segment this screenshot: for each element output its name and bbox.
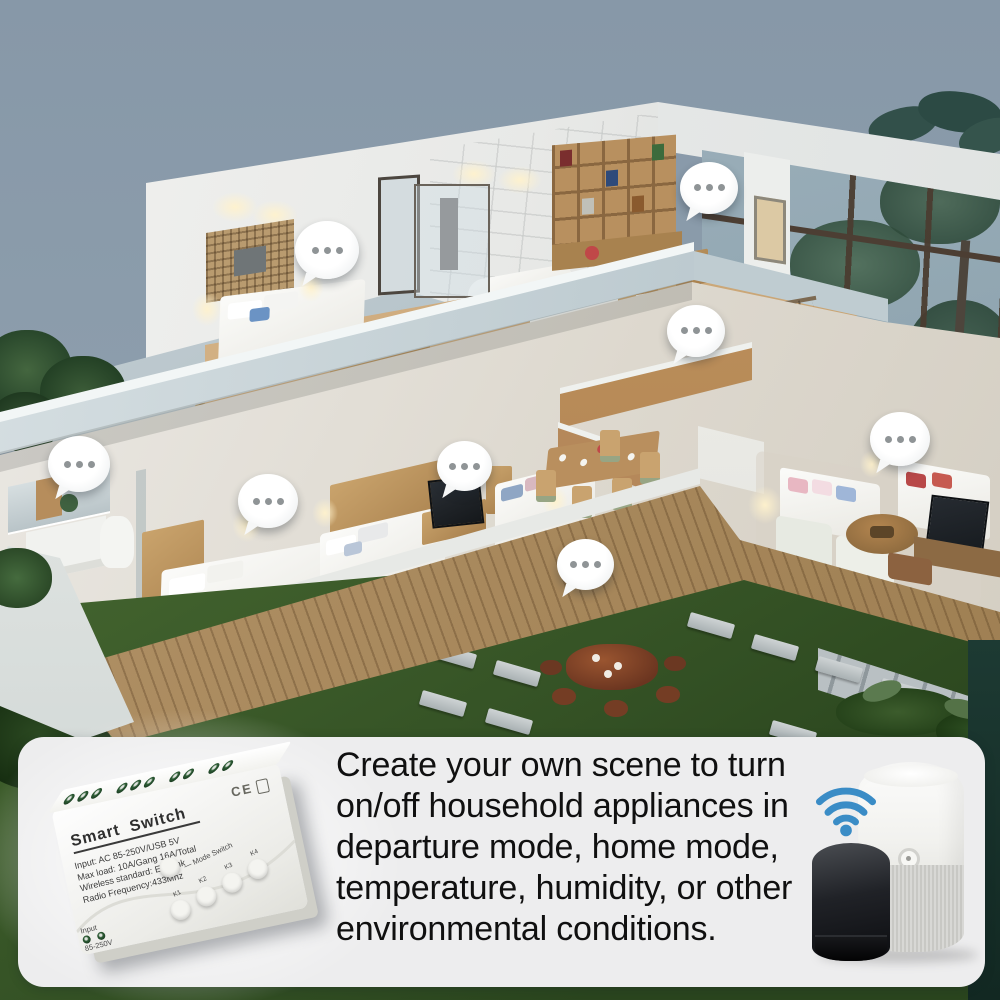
ce-mark: CE <box>230 777 270 800</box>
wifi-icon <box>812 775 880 837</box>
chat-bubble-ellipsis-icon <box>557 539 614 590</box>
ellipsis-dot <box>718 184 725 191</box>
ellipsis-dot <box>253 498 260 505</box>
ellipsis-dot <box>594 561 601 568</box>
ellipsis-dot <box>897 436 904 443</box>
ellipsis-dot <box>324 247 331 254</box>
feature-description: Create your own scene to turn on/off hou… <box>336 745 792 950</box>
feature-text-line: environmental conditions. <box>336 909 792 950</box>
ellipsis-dot <box>277 498 284 505</box>
info-panel: Smart Switch Input: AC 85-250V/USB 5V Ma… <box>18 737 985 987</box>
chat-bubble-ellipsis-icon <box>48 436 110 492</box>
ellipsis-dot <box>694 184 701 191</box>
terminal-screw <box>115 781 130 793</box>
terminal-strip <box>48 741 292 813</box>
chat-bubble-ellipsis-icon <box>667 305 725 357</box>
chat-bubble-ellipsis-icon <box>870 412 930 466</box>
chat-bubble-ellipsis-icon <box>238 474 298 528</box>
input-terminals: Input 85-250V <box>79 920 113 953</box>
smart-switch-product-photo: Smart Switch Input: AC 85-250V/USB 5V Ma… <box>34 745 346 973</box>
feature-text-line: temperature, humidity, or other <box>336 868 792 909</box>
terminal-screw <box>207 762 222 774</box>
terminal-screw <box>167 770 182 782</box>
ellipsis-dot <box>909 436 916 443</box>
smart-switch-body: Smart Switch Input: AC 85-250V/USB 5V Ma… <box>51 762 309 955</box>
feature-text-line: Create your own scene to turn <box>336 745 792 786</box>
smart-speaker-black <box>812 843 890 961</box>
ellipsis-dot <box>582 561 589 568</box>
feature-text-line: on/off household appliances in <box>336 786 792 827</box>
terminal-screw <box>76 789 91 801</box>
ellipsis-dot <box>336 247 343 254</box>
ellipsis-dot <box>88 461 95 468</box>
ellipsis-dot <box>681 327 688 334</box>
terminal-screw <box>220 759 235 771</box>
chat-bubble-ellipsis-icon <box>437 441 492 491</box>
ellipsis-dot <box>885 436 892 443</box>
ellipsis-dot <box>265 498 272 505</box>
ellipsis-dot <box>706 184 713 191</box>
smart-home-product-image: Smart Switch Input: AC 85-250V/USB 5V Ma… <box>0 0 1000 1000</box>
terminal-screw <box>142 775 157 787</box>
ellipsis-dot <box>64 461 71 468</box>
ellipsis-dot <box>705 327 712 334</box>
ellipsis-dot <box>570 561 577 568</box>
terminal-screw <box>128 778 143 790</box>
feature-text-line: departure mode, home mode, <box>336 827 792 868</box>
terminal-screw <box>181 767 196 779</box>
chat-bubble-ellipsis-icon <box>295 221 359 279</box>
ellipsis-dot <box>76 461 83 468</box>
ellipsis-dot <box>461 463 468 470</box>
ellipsis-dot <box>473 463 480 470</box>
terminal-screw <box>62 792 77 804</box>
rohs-mark-icon <box>255 778 270 794</box>
chat-bubble-ellipsis-icon <box>680 162 738 214</box>
ellipsis-dot <box>693 327 700 334</box>
terminal-screw <box>89 787 104 799</box>
ellipsis-dot <box>312 247 319 254</box>
speaker-base <box>815 935 887 961</box>
ellipsis-dot <box>449 463 456 470</box>
